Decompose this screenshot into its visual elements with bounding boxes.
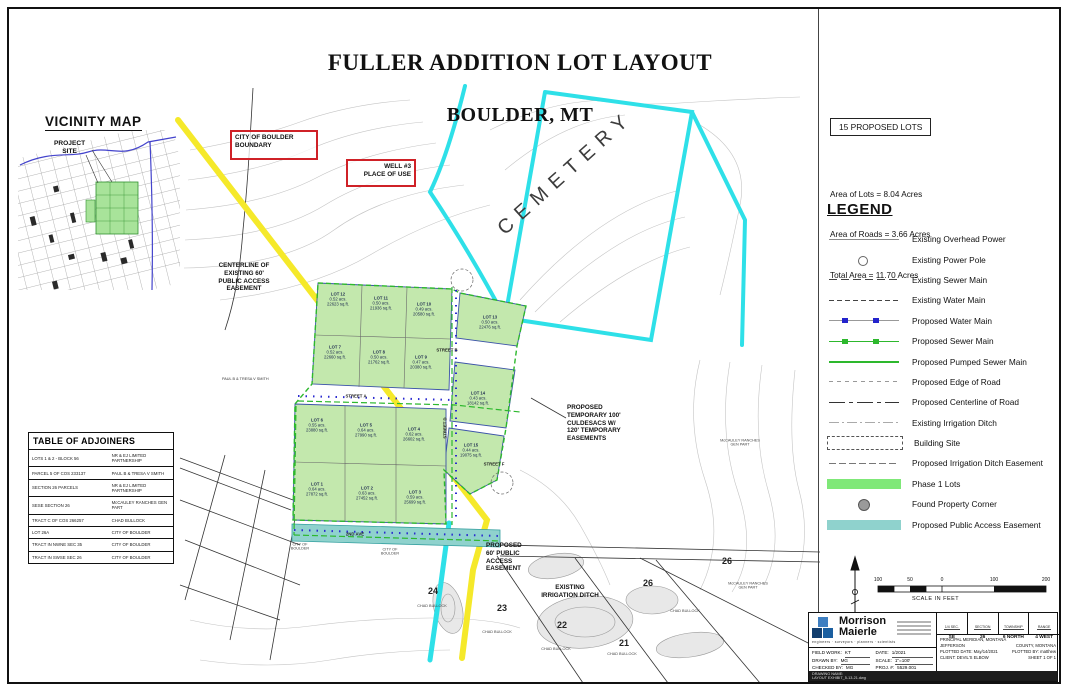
lot-sqft: 21762 sq.ft. — [368, 360, 390, 365]
lot-sqft: 25699 sq.ft. — [404, 500, 426, 505]
legend-row: Proposed Public Access Easement — [827, 514, 1052, 534]
lot-label: LOT 7 0.52 acs. 22660 sq.ft. — [324, 345, 346, 360]
lot-sqft: 23880 sq.ft. — [306, 428, 328, 433]
scale-tick: 200 — [1042, 577, 1050, 583]
lot-sqft: 18142 sq.ft. — [467, 401, 489, 406]
adjoiner-parcel: TRACT IN SWSE SEC 26 — [29, 552, 110, 563]
lot-sqft: 19075 sq.ft. — [460, 453, 482, 458]
adjoiner-owner: NR & EJ LIMITED PARTNERSHIP — [110, 450, 173, 466]
titleblock-right: 1/4 SEC.SE SECTION26 TOWNSHIP6 NORTH RAN… — [937, 613, 1059, 672]
legend-label: Proposed Centerline of Road — [912, 397, 1019, 407]
section-label: 1/4 SEC. — [944, 625, 960, 630]
lot-label: LOT 12 0.52 acs. 22623 sq.ft. — [327, 292, 349, 307]
adjoiner-owner: CHAD BULLOCK — [110, 515, 173, 526]
legend-label: Proposed Irrigation Ditch Easement — [912, 458, 1043, 468]
legend-swatch — [827, 520, 901, 530]
title-line2: BOULDER, MT — [180, 102, 860, 128]
legend-swatch — [827, 436, 903, 450]
street-label: STREET A — [345, 394, 366, 399]
adjoiner-owner: CITY OF BOULDER — [110, 539, 173, 550]
legend-swatch — [827, 376, 901, 388]
legend-row: Proposed Water Main — [827, 311, 1052, 331]
owner-label: CHAD BULLOCK — [417, 604, 447, 608]
legend-swatch — [827, 335, 901, 347]
section-box: SECTION26 — [968, 613, 999, 634]
adjoiner-row: LOTS 1 & 2 - BLOCK 56 NR & EJ LIMITED PA… — [29, 450, 173, 467]
lot-sqft: 22623 sq.ft. — [327, 302, 349, 307]
owner-label: CHAD BULLOCK — [670, 609, 700, 613]
adjoiner-owner: CITY OF BOULDER — [110, 527, 173, 538]
lot-label: LOT 11 0.50 acs. 21936 sq.ft. — [370, 296, 392, 311]
adjoiner-owner: NR & EJ LIMITED PARTNERSHIP — [110, 480, 173, 496]
legend-label: Existing Sewer Main — [912, 275, 987, 285]
legend-label: Existing Overhead Power — [912, 234, 1006, 244]
title-line1: FULLER ADDITION LOT LAYOUT — [180, 50, 860, 76]
legend-row: Phase 1 Lots — [827, 474, 1052, 494]
parcel-number: 21 — [619, 638, 629, 648]
scale-ticks: 100 50 0 100 200 — [0, 577, 1068, 584]
section-label: RANGE — [1037, 625, 1051, 630]
legend-list: Existing Overhead Power Existing Power P… — [827, 229, 1052, 535]
company-logo — [812, 617, 836, 639]
lot-label: LOT 14 0.43 acs. 18142 sq.ft. — [467, 391, 489, 406]
table-of-adjoiners: TABLE OF ADJOINERS LOTS 1 & 2 - BLOCK 56… — [28, 432, 174, 564]
city-boundary-callout: CITY OF BOULDER BOUNDARY — [230, 130, 318, 160]
culdesac-label: PROPOSED TEMPORARY 100' CULDESACS W/ 120… — [567, 404, 659, 443]
field-value: KT — [845, 650, 870, 658]
proposed-lots-badge: 15 PROPOSED LOTS — [830, 118, 931, 136]
legend-swatch — [827, 254, 901, 266]
legend-swatch — [827, 457, 901, 469]
lot-sqft: 27872 sq.ft. — [306, 492, 328, 497]
lot-sqft: 22660 sq.ft. — [324, 355, 346, 360]
section-label: SECTION — [974, 625, 992, 630]
legend-row: Existing Overhead Power — [827, 229, 1052, 249]
parcel-number: 24 — [428, 586, 438, 596]
title-block: Morrison Maierle engineers · surveyors ·… — [808, 612, 1058, 682]
owner-label: CHAD BULLOCK — [541, 647, 571, 651]
lot-sqft: 22476 sq.ft. — [479, 325, 501, 330]
section-box: TOWNSHIP6 NORTH — [999, 613, 1030, 634]
adjoiner-row: TRACT IN SWSE SEC 26 CITY OF BOULDER — [29, 552, 173, 563]
legend-label: Existing Irrigation Ditch — [912, 418, 997, 428]
company-tagline: engineers · surveyors · planners · scien… — [812, 640, 896, 644]
well-place-of-use-callout: WELL #3 PLACE OF USE — [346, 159, 416, 187]
legend-label: Found Property Corner — [912, 499, 997, 509]
adjoiner-row: LOT 26A CITY OF BOULDER — [29, 527, 173, 539]
legend-row: Proposed Edge of Road — [827, 372, 1052, 392]
parcel-number: 22 — [557, 620, 567, 630]
lot-label: LOT 1 0.64 acs. 27872 sq.ft. — [306, 482, 328, 497]
legend-label: Existing Power Pole — [912, 255, 986, 265]
adjoiner-parcel: TRACT C OF COS 266257 — [29, 515, 110, 526]
street-label: STREET D — [443, 417, 448, 438]
legend-swatch — [827, 498, 901, 510]
legend-row: Proposed Centerline of Road — [827, 392, 1052, 412]
legend-label: Proposed Sewer Main — [912, 336, 994, 346]
field-label: FIELD WORK: — [812, 650, 842, 658]
owner-label: CHAD BULLOCK — [607, 652, 637, 656]
section-label: TOWNSHIP — [1003, 625, 1024, 630]
lot-sqft: 20380 sq.ft. — [410, 365, 432, 370]
adjoiners-title: TABLE OF ADJOINERS — [29, 433, 173, 450]
access-easement-label: PROPOSED 60' PUBLIC ACCESS EASEMENT — [486, 542, 556, 573]
legend-label: Proposed Pumped Sewer Main — [912, 357, 1027, 367]
project-site-label: PROJECT SITE — [54, 140, 85, 155]
legend-row: Building Site — [827, 433, 1052, 453]
irrigation-ditch-label: EXISTING IRRIGATION DITCH — [512, 584, 628, 600]
lot-label: LOT 10 0.49 acs. 20580 sq.ft. — [413, 302, 435, 317]
lot-sqft: 21936 sq.ft. — [370, 306, 392, 311]
client: CLIENT: DEVIL'S ELBOW — [940, 655, 989, 661]
field-label: DRAWN BY: — [812, 658, 838, 666]
owner-label: CITY OF BOULDER — [381, 548, 399, 557]
legend-row: Found Property Corner — [827, 494, 1052, 514]
adjoiner-row: SESE SECTION 26 McCAULEY RANCHES GEN PAR… — [29, 497, 173, 514]
street-label: STREET B — [436, 348, 457, 353]
parcel-number: 23 — [497, 603, 507, 613]
lot-sqft: 20580 sq.ft. — [413, 312, 435, 317]
scale-tick: 0 — [941, 577, 944, 583]
field-value: MG — [841, 658, 870, 666]
legend-label: Proposed Edge of Road — [912, 377, 1001, 387]
legend-label: Existing Water Main — [912, 295, 985, 305]
field-label: DATE: — [876, 650, 889, 658]
adjoiner-owner: CITY OF BOULDER — [110, 552, 173, 563]
legend-row: Existing Water Main — [827, 290, 1052, 310]
centerline-easement-label: CENTERLINE OF EXISTING 60' PUBLIC ACCESS… — [193, 262, 295, 293]
company-name-2: Maierle — [839, 627, 886, 638]
company-block: Morrison Maierle engineers · surveyors ·… — [809, 613, 937, 648]
legend-row: Existing Power Pole — [827, 249, 1052, 269]
legend-swatch — [827, 233, 901, 245]
legend-swatch — [827, 356, 901, 368]
vicinity-map-title: VICINITY MAP — [45, 114, 142, 131]
lot-label: LOT 8 0.50 acs. 21762 sq.ft. — [368, 350, 390, 365]
owner-label: CITY OF BOULDER — [291, 543, 309, 552]
adjoiner-row: TRACT IN NWNE SEC 35 CITY OF BOULDER — [29, 539, 173, 551]
adjoiner-owner: PAUL B & TRESA V SMITH — [110, 467, 173, 478]
plan-sheet: FULLER ADDITION LOT LAYOUT BOULDER, MT V… — [0, 0, 1068, 691]
section-box: RANGE4 WEST — [1029, 613, 1059, 634]
legend-label: Proposed Water Main — [912, 316, 992, 326]
company-contact — [897, 619, 931, 637]
legend-row: Proposed Sewer Main — [827, 331, 1052, 351]
field-value: 1"=100' — [895, 658, 933, 666]
legend-swatch — [827, 417, 901, 429]
legend-label: Phase 1 Lots — [912, 479, 960, 489]
lot-label: LOT 3 0.59 acs. 25699 sq.ft. — [404, 490, 426, 505]
section-value: 4 WEST — [1029, 635, 1059, 640]
lot-label: LOT 4 0.62 acs. 26602 sq.ft. — [403, 427, 425, 442]
legend-swatch — [827, 294, 901, 306]
sheet-number: SHEET 1 OF 1 — [1028, 655, 1056, 661]
field-label: SCALE: — [876, 658, 892, 666]
street-label: 2ND AVE — [346, 532, 364, 537]
section-box: 1/4 SEC.SE — [937, 613, 968, 634]
adjoiner-parcel: SESE SECTION 26 — [29, 500, 110, 511]
adjoiner-row: SECTION 26 PARCELS NR & EJ LIMITED PARTN… — [29, 480, 173, 497]
legend-swatch — [827, 315, 901, 327]
lot-label: LOT 13 0.50 acs. 22476 sq.ft. — [479, 315, 501, 330]
lot-sqft: 26602 sq.ft. — [403, 437, 425, 442]
scale-tick: 100 — [874, 577, 882, 583]
titleblock-fields: FIELD WORK:KT DRAWN BY:MG CHECKED BY:MG … — [809, 648, 937, 672]
legend-label: Building Site — [914, 438, 960, 448]
lot-label: LOT 5 0.64 acs. 27990 sq.ft. — [355, 423, 377, 438]
legend-label: Proposed Public Access Easement — [912, 520, 1041, 530]
legend-swatch — [827, 479, 901, 489]
scale-tick: 50 — [907, 577, 913, 583]
adjoiner-parcel: SECTION 26 PARCELS — [29, 482, 110, 493]
adjoiner-row: TRACT C OF COS 266257 CHAD BULLOCK — [29, 515, 173, 527]
lot-sqft: 27452 sq.ft. — [356, 496, 378, 501]
legend-row: Proposed Pumped Sewer Main — [827, 351, 1052, 371]
owner-label: McCAULEY RANCHES GEN PART — [720, 439, 760, 448]
street-label: STREET F — [484, 462, 505, 467]
lot-label: LOT 6 0.55 acs. 23880 sq.ft. — [306, 418, 328, 433]
parcel-number: 26 — [722, 556, 732, 566]
adjoiner-row: PARCEL 5 OF COS 233137 PAUL B & TRESA V … — [29, 467, 173, 479]
adjoiner-parcel: LOT 26A — [29, 527, 110, 538]
lot-label: LOT 15 0.44 acs. 19075 sq.ft. — [460, 443, 482, 458]
area-summary-line: Area of Lots = 8.04 Acres — [830, 188, 930, 202]
legend-row: Proposed Irrigation Ditch Easement — [827, 453, 1052, 473]
legend-row: Existing Sewer Main — [827, 270, 1052, 290]
legend-title: LEGEND — [827, 201, 893, 218]
scale-tick: 100 — [990, 577, 998, 583]
lot-sqft: 27990 sq.ft. — [355, 433, 377, 438]
legend-swatch — [827, 396, 901, 408]
adjoiner-owner: McCAULEY RANCHES GEN PART — [110, 497, 173, 513]
adjoiners-rows: LOTS 1 & 2 - BLOCK 56 NR & EJ LIMITED PA… — [29, 450, 173, 563]
company-name: Morrison Maierle — [839, 616, 886, 638]
adjoiner-owner-label: PAUL B & TRESA V SMITH — [222, 377, 284, 381]
adjoiner-parcel: PARCEL 5 OF COS 233137 — [29, 467, 110, 478]
scale-bar-label: SCALE IN FEET — [912, 596, 959, 602]
lot-label: LOT 9 0.47 acs. 20380 sq.ft. — [410, 355, 432, 370]
adjoiner-parcel: TRACT IN NWNE SEC 35 — [29, 539, 110, 550]
field-value: 1/2021 — [892, 650, 933, 658]
drawing-name-bar: DRAWING NAME: LAYOUT EXHIBIT_5-13-21.dwg — [809, 671, 1057, 681]
adjoiner-parcel: LOTS 1 & 2 - BLOCK 56 — [29, 453, 110, 464]
legend-swatch — [827, 274, 901, 286]
lot-label: LOT 2 0.63 acs. 27452 sq.ft. — [356, 486, 378, 501]
owner-label: CHAD BULLOCK — [482, 630, 512, 634]
legend-row: Existing Irrigation Ditch — [827, 413, 1052, 433]
